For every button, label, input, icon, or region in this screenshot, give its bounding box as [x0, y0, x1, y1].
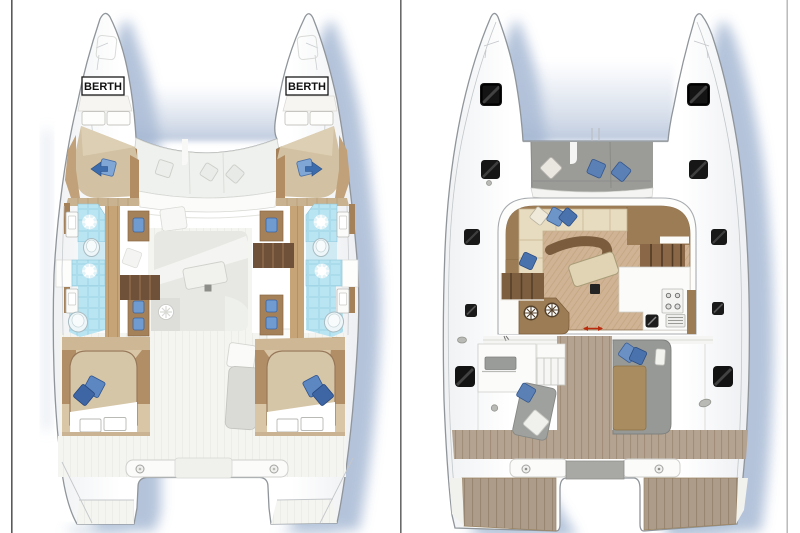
svg-text:BERTH: BERTH: [288, 81, 326, 93]
svg-text:BERTH: BERTH: [84, 81, 122, 93]
